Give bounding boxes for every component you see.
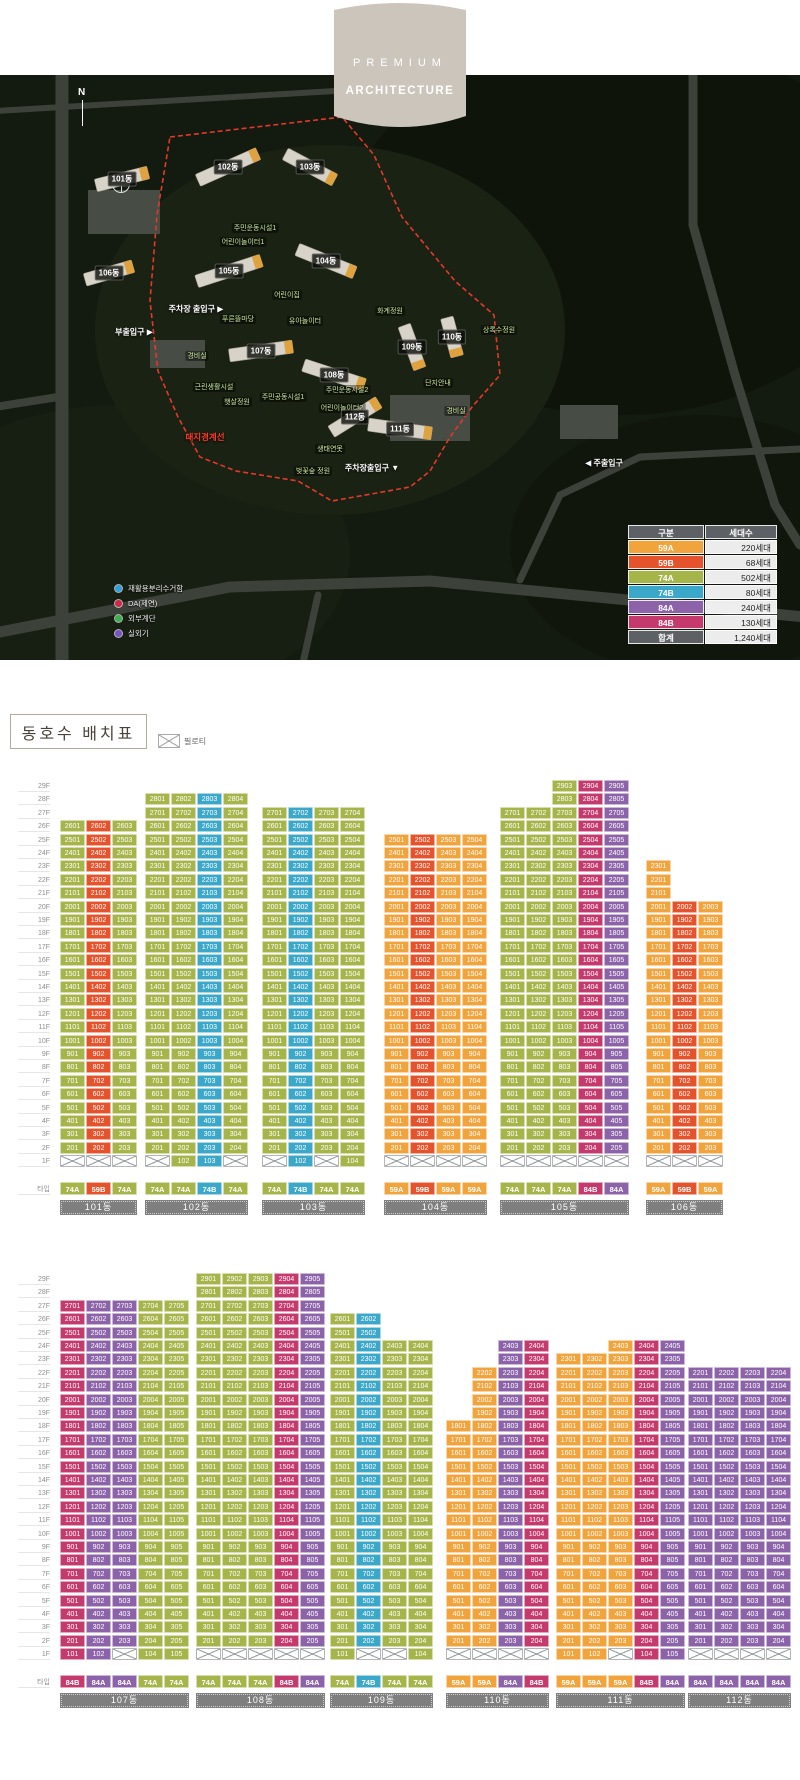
unit-cell: 203 — [248, 1635, 273, 1647]
unit-cell: 1105 — [604, 1021, 629, 1033]
unit-cell: 304 — [578, 1128, 603, 1140]
unit-cell: 1504 — [462, 968, 487, 980]
unit-cell: 204 — [340, 1142, 365, 1154]
unit-cell: 101 — [330, 1648, 355, 1660]
unit-cell: 1901 — [646, 914, 671, 926]
unit-cell: 1304 — [578, 994, 603, 1006]
unit-cell: 1202 — [714, 1501, 739, 1513]
unit-cell: 1201 — [646, 1008, 671, 1020]
unit-cell: 2201 — [196, 1367, 221, 1379]
unit-cell: 1102 — [86, 1514, 111, 1526]
unit-cell: 2002 — [356, 1394, 381, 1406]
unit-cell: 2502 — [526, 834, 551, 846]
unit-cell: 1303 — [740, 1487, 765, 1499]
unit-cell: 1702 — [86, 1434, 111, 1446]
unit-cell: 1401 — [446, 1474, 471, 1486]
unit-cell: 1203 — [112, 1008, 137, 1020]
unit-cell: 2104 — [138, 1380, 163, 1392]
floor-label: 16F — [18, 1447, 50, 1459]
unit-cell: 2202 — [222, 1367, 247, 1379]
unit-cell: 2003 — [698, 901, 723, 913]
unit-cell: 1403 — [740, 1474, 765, 1486]
unit-cell: 1505 — [660, 1461, 685, 1473]
floor-label: 4F — [18, 1115, 50, 1127]
unit-cell: 1004 — [274, 1528, 299, 1540]
unit-cell: 503 — [436, 1102, 461, 1114]
unit-cell: 2101 — [60, 1380, 85, 1392]
floor-label: 10F — [18, 1528, 50, 1540]
unit-cell: 604 — [524, 1581, 549, 1593]
unit-cell: 1803 — [740, 1420, 765, 1432]
unit-cell: 802 — [288, 1061, 313, 1073]
unit-cell: 2202 — [582, 1367, 607, 1379]
unit-cell: 2501 — [262, 834, 287, 846]
unit-cell: 504 — [223, 1102, 248, 1114]
unit-cell: 2404 — [578, 847, 603, 859]
unit-cell: 2301 — [262, 860, 287, 872]
unit-cell: 504 — [524, 1595, 549, 1607]
unit-cell: 2102 — [356, 1380, 381, 1392]
unit-cell: 401 — [196, 1608, 221, 1620]
unit-cell: 404 — [578, 1115, 603, 1127]
unit-cell: 503 — [112, 1102, 137, 1114]
unit-cell: 1004 — [524, 1528, 549, 1540]
floor-label: 14F — [18, 981, 50, 993]
unit-cell: 1402 — [86, 1474, 111, 1486]
type-cell: 74A — [222, 1675, 247, 1688]
unit-cell: 1002 — [672, 1035, 697, 1047]
unit-cell: 705 — [300, 1568, 325, 1580]
unit-cell: 1502 — [86, 968, 111, 980]
unit-cell: 903 — [608, 1541, 633, 1553]
unit-cell: 1102 — [356, 1514, 381, 1526]
unit-cell: 1303 — [552, 994, 577, 1006]
unit-cell: 603 — [112, 1581, 137, 1593]
unit-cell: 1802 — [171, 927, 196, 939]
unit-cell: 1402 — [714, 1474, 739, 1486]
unit-cell: 901 — [688, 1541, 713, 1553]
unit-cell: 502 — [410, 1102, 435, 1114]
unit-cell: 1804 — [274, 1420, 299, 1432]
unit-cell: 2202 — [288, 874, 313, 886]
unit-cell: 501 — [384, 1102, 409, 1114]
unit-cell: 2205 — [604, 874, 629, 886]
floor-label: 26F — [18, 1313, 50, 1325]
unit-cell: 2103 — [314, 887, 339, 899]
building-label: 101동 — [60, 1200, 137, 1215]
unit-cell: 1501 — [262, 968, 287, 980]
unit-cell: 1902 — [472, 1407, 497, 1419]
unit-cell: 1904 — [138, 1407, 163, 1419]
unit-cell: 1701 — [556, 1434, 581, 1446]
unit-cell: 2204 — [634, 1367, 659, 1379]
unit-cell: 403 — [698, 1115, 723, 1127]
unit-cell: 603 — [552, 1088, 577, 1100]
unit-cell: 903 — [112, 1048, 137, 1060]
floor-label: 1F — [18, 1648, 50, 1660]
unit-cell: 905 — [164, 1541, 189, 1553]
unit-cell: 2801 — [145, 793, 170, 805]
unit-cell: 2102 — [171, 887, 196, 899]
unit-cell: 1701 — [60, 1434, 85, 1446]
unit-cell: 1702 — [714, 1434, 739, 1446]
unit-cell: 1402 — [672, 981, 697, 993]
unit-cell: 701 — [384, 1075, 409, 1087]
unit-cell: 1104 — [408, 1514, 433, 1526]
unit-cell: 202 — [672, 1142, 697, 1154]
unit-cell: 1404 — [138, 1474, 163, 1486]
type-cell: 59A — [472, 1675, 497, 1688]
unit-cell: 804 — [524, 1554, 549, 1566]
unit-cell: 404 — [138, 1608, 163, 1620]
unit-cell: 1603 — [740, 1447, 765, 1459]
unit-cell: 903 — [112, 1541, 137, 1553]
unit-cell: 1703 — [248, 1434, 273, 1446]
unit-cell: 2104 — [223, 887, 248, 899]
unit-cell: 2701 — [145, 807, 170, 819]
unit-cell: 1401 — [384, 981, 409, 993]
unit-cell: 104 — [408, 1648, 433, 1660]
unit-cell: 1704 — [524, 1434, 549, 1446]
unit-cell: 1302 — [582, 1487, 607, 1499]
unit-cell: 2701 — [196, 1300, 221, 1312]
unit-cell: 1101 — [384, 1021, 409, 1033]
unit-cell: 801 — [145, 1061, 170, 1073]
unit-cell: 1103 — [112, 1021, 137, 1033]
unit-cell: 1003 — [197, 1035, 222, 1047]
unit-cell: 1601 — [60, 1447, 85, 1459]
unit-cell: 804 — [340, 1061, 365, 1073]
unit-cell: 1903 — [698, 914, 723, 926]
unit-cell: 1903 — [382, 1407, 407, 1419]
unit-cell: 2601 — [145, 820, 170, 832]
unit-cell: 2101 — [688, 1380, 713, 1392]
unit-cell: 1303 — [382, 1487, 407, 1499]
type-cell: 74A — [138, 1675, 163, 1688]
unit-cell: 802 — [526, 1061, 551, 1073]
unit-cell: 1602 — [86, 1447, 111, 1459]
unit-cell: 2202 — [714, 1367, 739, 1379]
unit-cell: 2302 — [356, 1353, 381, 1365]
unit-cell: 1002 — [86, 1528, 111, 1540]
unit-cell: 2002 — [714, 1394, 739, 1406]
unit-cell: 502 — [171, 1102, 196, 1114]
unit-cell: 2303 — [608, 1353, 633, 1365]
unit-count-cell: 220세대 — [705, 540, 777, 554]
unit-cell: 902 — [582, 1541, 607, 1553]
unit-cell: 601 — [556, 1581, 581, 1593]
unit-cell: 1303 — [248, 1487, 273, 1499]
unit-cell: 2105 — [660, 1380, 685, 1392]
unit-cell: 2503 — [112, 1327, 137, 1339]
unit-cell: 2604 — [138, 1313, 163, 1325]
unit-cell: 1301 — [688, 1487, 713, 1499]
unit-cell: 1502 — [356, 1461, 381, 1473]
unit-cell: 602 — [222, 1581, 247, 1593]
unit-cell: 302 — [714, 1621, 739, 1633]
unit-cell: 302 — [582, 1621, 607, 1633]
unit-cell: 2005 — [164, 1394, 189, 1406]
unit-cell: 1103 — [112, 1514, 137, 1526]
unit-cell: 1301 — [330, 1487, 355, 1499]
unit-cell: 1503 — [740, 1461, 765, 1473]
unit-cell: 1703 — [740, 1434, 765, 1446]
unit-cell: 302 — [672, 1128, 697, 1140]
unit-cell: 1204 — [462, 1008, 487, 1020]
facility-label: 경비실 — [185, 351, 208, 361]
unit-cell: 305 — [300, 1621, 325, 1633]
unit-cell: 1301 — [646, 994, 671, 1006]
unit-cell: 1204 — [223, 1008, 248, 1020]
unit-cell: 1805 — [604, 927, 629, 939]
unit-cell: 503 — [498, 1595, 523, 1607]
piloti-cell — [60, 1155, 85, 1167]
unit-cell: 801 — [330, 1554, 355, 1566]
unit-cell: 1402 — [526, 981, 551, 993]
unit-cell: 701 — [60, 1568, 85, 1580]
building-label: 110동 — [446, 1693, 549, 1708]
unit-cell: 605 — [300, 1581, 325, 1593]
unit-cell: 1703 — [314, 941, 339, 953]
unit-cell: 2002 — [672, 901, 697, 913]
unit-cell: 2103 — [248, 1380, 273, 1392]
floor-label: 13F — [18, 1487, 50, 1499]
unit-cell: 301 — [330, 1621, 355, 1633]
unit-cell: 702 — [86, 1568, 111, 1580]
unit-cell: 1904 — [408, 1407, 433, 1419]
unit-cell: 1302 — [472, 1487, 497, 1499]
unit-cell: 2203 — [552, 874, 577, 886]
floor-label: 2F — [18, 1142, 50, 1154]
unit-cell: 202 — [222, 1635, 247, 1647]
unit-cell: 105 — [660, 1648, 685, 1660]
unit-cell: 2803 — [197, 793, 222, 805]
unit-cell: 1603 — [698, 954, 723, 966]
unit-cell: 701 — [688, 1568, 713, 1580]
unit-cell: 2005 — [300, 1394, 325, 1406]
unit-cell: 702 — [672, 1075, 697, 1087]
unit-cell: 1401 — [646, 981, 671, 993]
unit-cell: 1601 — [60, 954, 85, 966]
building-label: 111동 — [556, 1693, 685, 1708]
unit-count-row: 74A502세대 — [628, 570, 777, 584]
floor-label: 25F — [18, 834, 50, 846]
unit-cell: 2104 — [524, 1380, 549, 1392]
site-map: N 101동102동103동104동105동106동107동108동109동11… — [0, 75, 800, 660]
unit-cell: 502 — [86, 1595, 111, 1607]
unit-cell: 1101 — [446, 1514, 471, 1526]
unit-cell: 101 — [60, 1648, 85, 1660]
unit-cell: 1302 — [672, 994, 697, 1006]
unit-cell: 2103 — [740, 1380, 765, 1392]
unit-cell: 1701 — [196, 1434, 221, 1446]
type-cell: 59A — [436, 1182, 461, 1195]
unit-cell: 803 — [248, 1554, 273, 1566]
unit-cell: 1501 — [384, 968, 409, 980]
unit-cell: 404 — [274, 1608, 299, 1620]
unit-cell: 1403 — [382, 1474, 407, 1486]
unit-cell: 2805 — [604, 793, 629, 805]
unit-cell: 904 — [766, 1541, 791, 1553]
unit-cell: 1405 — [164, 1474, 189, 1486]
unit-cell: 803 — [314, 1061, 339, 1073]
unit-cell: 702 — [356, 1568, 381, 1580]
unit-cell: 2802 — [222, 1286, 247, 1298]
unit-cell: 402 — [672, 1115, 697, 1127]
unit-cell: 2302 — [86, 1353, 111, 1365]
facility-label: 햇살정원 — [222, 397, 252, 407]
unit-cell: 1705 — [164, 1434, 189, 1446]
unit-cell: 703 — [698, 1075, 723, 1087]
unit-cell: 1102 — [672, 1021, 697, 1033]
unit-cell: 503 — [552, 1102, 577, 1114]
unit-cell: 1602 — [672, 954, 697, 966]
unit-cell: 2605 — [604, 820, 629, 832]
unit-cell: 703 — [314, 1075, 339, 1087]
unit-cell: 2601 — [330, 1313, 355, 1325]
unit-cell: 404 — [462, 1115, 487, 1127]
unit-cell: 2403 — [197, 847, 222, 859]
unit-cell: 1002 — [86, 1035, 111, 1047]
unit-cell: 1704 — [274, 1434, 299, 1446]
marker-legend-item: 외부계단 — [115, 611, 183, 626]
unit-cell: 1304 — [462, 994, 487, 1006]
unit-cell: 2304 — [578, 860, 603, 872]
unit-cell: 303 — [552, 1128, 577, 1140]
unit-cell: 1203 — [314, 1008, 339, 1020]
unit-cell: 304 — [340, 1128, 365, 1140]
unit-cell: 1802 — [86, 1420, 111, 1432]
unit-cell: 2105 — [164, 1380, 189, 1392]
unit-cell: 703 — [740, 1568, 765, 1580]
unit-cell: 805 — [604, 1061, 629, 1073]
unit-cell: 2201 — [500, 874, 525, 886]
unit-cell: 2102 — [86, 1380, 111, 1392]
unit-cell: 402 — [410, 1115, 435, 1127]
unit-cell: 2201 — [262, 874, 287, 886]
unit-cell: 2305 — [300, 1353, 325, 1365]
unit-cell: 901 — [646, 1048, 671, 1060]
unit-cell: 1001 — [145, 1035, 170, 1047]
unit-cell: 1703 — [552, 941, 577, 953]
unit-cell: 201 — [330, 1635, 355, 1647]
unit-cell: 1003 — [740, 1528, 765, 1540]
unit-cell: 201 — [196, 1635, 221, 1647]
unit-cell: 2304 — [340, 860, 365, 872]
unit-cell: 801 — [556, 1554, 581, 1566]
unit-cell: 703 — [197, 1075, 222, 1087]
unit-cell: 2401 — [500, 847, 525, 859]
unit-cell: 2705 — [604, 807, 629, 819]
unit-cell: 2501 — [384, 834, 409, 846]
unit-cell: 303 — [112, 1621, 137, 1633]
unit-cell: 1402 — [472, 1474, 497, 1486]
unit-cell: 1605 — [604, 954, 629, 966]
unit-cell: 1502 — [288, 968, 313, 980]
unit-cell: 902 — [222, 1541, 247, 1553]
unit-cell: 1102 — [288, 1021, 313, 1033]
unit-cell: 504 — [408, 1595, 433, 1607]
entrance-label: 부출입구 ▶ — [115, 327, 153, 338]
unit-cell: 1603 — [112, 1447, 137, 1459]
unit-cell: 2002 — [526, 901, 551, 913]
unit-cell: 1604 — [462, 954, 487, 966]
unit-cell: 1503 — [248, 1461, 273, 1473]
unit-cell: 1802 — [526, 927, 551, 939]
unit-cell: 205 — [604, 1142, 629, 1154]
unit-cell: 1003 — [498, 1528, 523, 1540]
unit-cell: 2204 — [462, 874, 487, 886]
unit-cell: 2702 — [86, 1300, 111, 1312]
unit-cell: 2704 — [274, 1300, 299, 1312]
unit-cell: 1402 — [222, 1474, 247, 1486]
piloti-cell — [222, 1648, 247, 1660]
unit-cell: 302 — [410, 1128, 435, 1140]
unit-cell: 1203 — [382, 1501, 407, 1513]
unit-cell: 703 — [552, 1075, 577, 1087]
unit-cell: 303 — [740, 1621, 765, 1633]
boundary-label: 대지경계선 — [185, 431, 224, 443]
unit-cell: 2902 — [222, 1273, 247, 1285]
unit-cell: 2304 — [524, 1353, 549, 1365]
unit-cell: 1101 — [556, 1514, 581, 1526]
unit-cell: 601 — [446, 1581, 471, 1593]
unit-cell: 2203 — [112, 1367, 137, 1379]
unit-cell: 1203 — [248, 1501, 273, 1513]
unit-cell: 1805 — [164, 1420, 189, 1432]
unit-cell: 2303 — [498, 1353, 523, 1365]
unit-cell: 1601 — [446, 1447, 471, 1459]
unit-cell: 1701 — [646, 941, 671, 953]
unit-cell: 605 — [660, 1581, 685, 1593]
unit-cell: 2201 — [60, 874, 85, 886]
unit-cell: 2502 — [222, 1327, 247, 1339]
unit-cell: 201 — [646, 1142, 671, 1154]
unit-cell: 1602 — [526, 954, 551, 966]
unit-cell: 1004 — [766, 1528, 791, 1540]
unit-cell: 1704 — [408, 1434, 433, 1446]
unit-cell: 501 — [500, 1102, 525, 1114]
unit-cell: 403 — [608, 1608, 633, 1620]
unit-cell: 704 — [274, 1568, 299, 1580]
unit-cell: 601 — [646, 1088, 671, 1100]
unit-cell: 104 — [340, 1155, 365, 1167]
unit-cell: 605 — [164, 1581, 189, 1593]
unit-cell: 304 — [524, 1621, 549, 1633]
unit-cell: 804 — [634, 1554, 659, 1566]
unit-cell: 2903 — [552, 780, 577, 792]
unit-cell: 201 — [446, 1635, 471, 1647]
unit-cell: 904 — [274, 1541, 299, 1553]
unit-cell: 1305 — [660, 1487, 685, 1499]
unit-cell: 2602 — [356, 1313, 381, 1325]
type-cell: 84B — [524, 1675, 549, 1688]
unit-cell: 2104 — [766, 1380, 791, 1392]
unit-cell: 801 — [446, 1554, 471, 1566]
unit-cell: 1702 — [526, 941, 551, 953]
unit-cell: 401 — [330, 1608, 355, 1620]
unit-cell: 202 — [288, 1142, 313, 1154]
unit-cell: 301 — [262, 1128, 287, 1140]
marker-legend-label: 재활용분리수거함 — [128, 583, 183, 594]
unit-cell: 502 — [672, 1102, 697, 1114]
unit-cell: 1801 — [145, 927, 170, 939]
unit-cell: 1702 — [356, 1434, 381, 1446]
piloti-cell — [86, 1155, 111, 1167]
unit-cell: 501 — [688, 1595, 713, 1607]
unit-cell: 2602 — [86, 1313, 111, 1325]
building-map-label: 101동 — [108, 172, 137, 187]
